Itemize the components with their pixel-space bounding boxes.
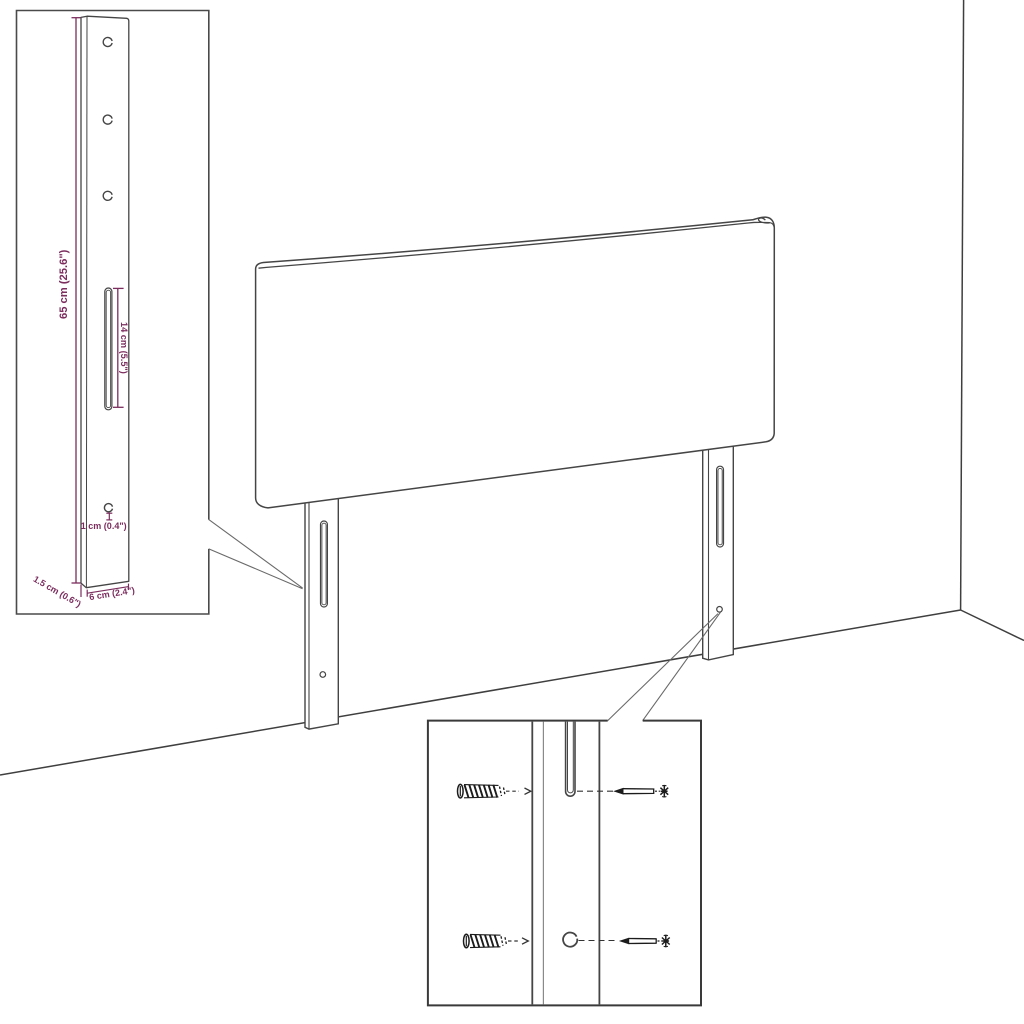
svg-text:65 cm (25.6"): 65 cm (25.6") bbox=[58, 249, 70, 319]
svg-text:14 cm (5.5"): 14 cm (5.5") bbox=[119, 322, 129, 374]
svg-text:1 cm (0.4"): 1 cm (0.4") bbox=[81, 521, 127, 531]
